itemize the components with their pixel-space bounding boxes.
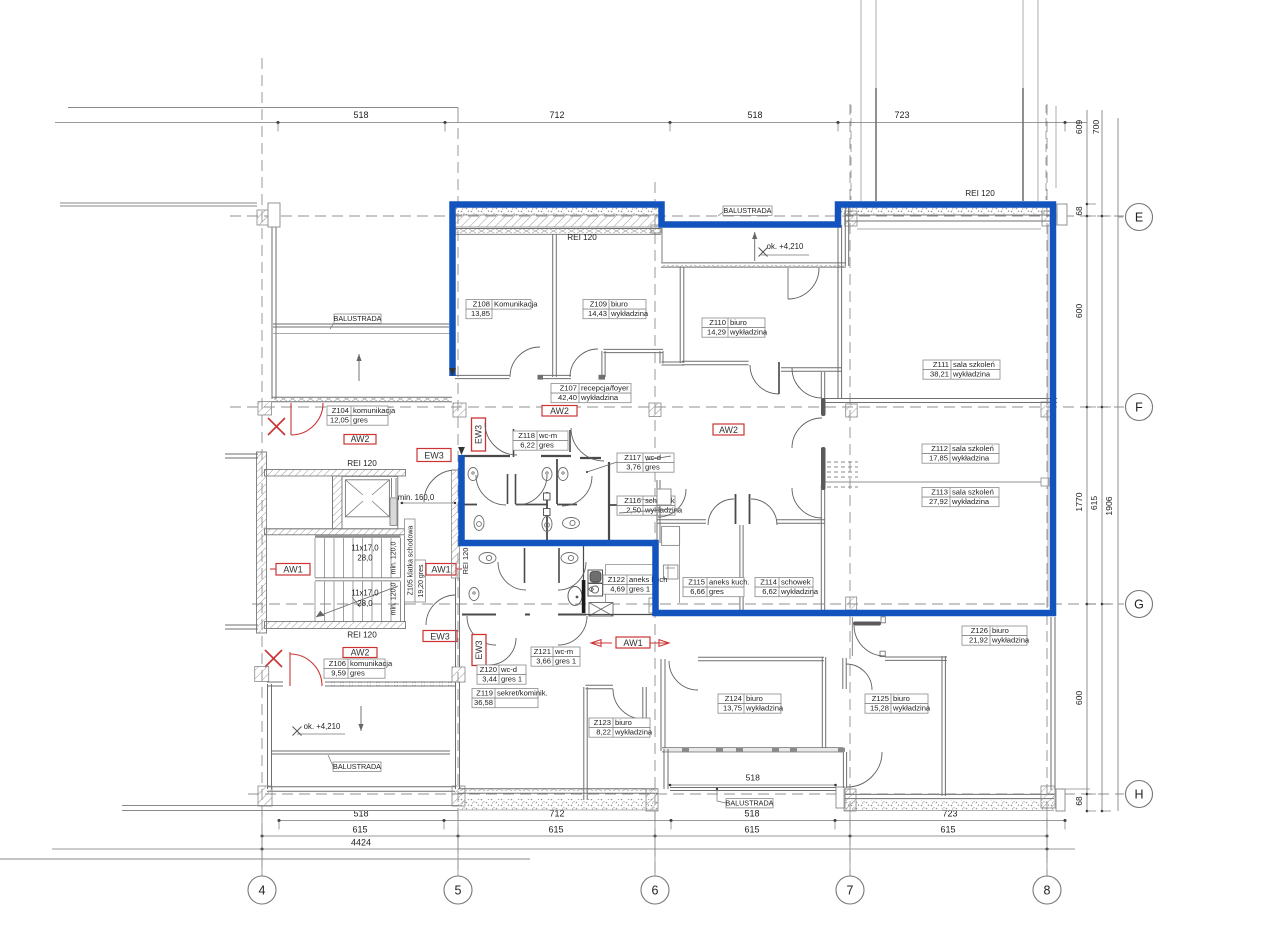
svg-text:Z116: Z116 <box>624 496 641 505</box>
svg-text:712: 712 <box>549 110 564 120</box>
svg-text:615: 615 <box>940 824 955 834</box>
svg-text:sala szkoleń: sala szkoleń <box>952 488 994 497</box>
svg-text:wc-m: wc-m <box>554 647 573 656</box>
svg-text:Z111: Z111 <box>933 360 949 369</box>
svg-text:723: 723 <box>894 110 909 120</box>
svg-text:3,76: 3,76 <box>626 463 641 472</box>
svg-text:28,0: 28,0 <box>357 554 373 563</box>
svg-text:AW2: AW2 <box>719 425 738 435</box>
svg-text:wykładzina: wykładzina <box>614 728 653 737</box>
svg-text:600: 600 <box>1074 304 1084 319</box>
svg-text:BALUSTRADA: BALUSTRADA <box>726 799 774 808</box>
svg-text:BALUSTRADA: BALUSTRADA <box>724 206 772 215</box>
svg-text:518: 518 <box>353 809 368 819</box>
svg-text:gres 1: gres 1 <box>555 657 576 666</box>
svg-text:19,20 gres: 19,20 gres <box>418 564 425 598</box>
svg-text:13,75: 13,75 <box>723 704 742 713</box>
svg-text:11x17,0: 11x17,0 <box>351 589 379 598</box>
svg-text:8,22: 8,22 <box>596 728 611 737</box>
svg-text:Z117: Z117 <box>624 453 641 462</box>
svg-text:gres: gres <box>353 416 368 425</box>
svg-text:F: F <box>1135 400 1143 414</box>
svg-text:biuro: biuro <box>746 694 763 703</box>
svg-text:21,92: 21,92 <box>969 636 988 645</box>
svg-text:wykładzina: wykładzina <box>951 497 990 506</box>
svg-text:615: 615 <box>352 824 367 834</box>
svg-text:biuro: biuro <box>893 694 910 703</box>
svg-text:13,85: 13,85 <box>471 309 490 318</box>
svg-text:6: 6 <box>652 883 659 897</box>
svg-text:wykładzina: wykładzina <box>892 704 931 713</box>
svg-text:aneks kuch: aneks kuch <box>629 575 667 584</box>
svg-text:wykładzina: wykładzina <box>745 704 784 713</box>
svg-text:aneks kuch.: aneks kuch. <box>709 578 750 587</box>
svg-text:38,21: 38,21 <box>930 370 949 379</box>
svg-text:Z112: Z112 <box>931 444 948 453</box>
svg-text:4,69: 4,69 <box>610 585 625 594</box>
svg-text:8: 8 <box>1044 883 1051 897</box>
svg-text:1906: 1906 <box>1104 496 1114 515</box>
svg-text:AW2: AW2 <box>351 434 370 444</box>
svg-text:wc-m: wc-m <box>538 431 557 440</box>
svg-text:12,05: 12,05 <box>330 416 349 425</box>
svg-text:G: G <box>1134 597 1144 611</box>
svg-text:4: 4 <box>259 883 266 897</box>
svg-text:EW3: EW3 <box>474 640 484 659</box>
svg-text:600: 600 <box>1074 691 1084 706</box>
svg-text:AW1: AW1 <box>283 565 302 575</box>
svg-text:Z125: Z125 <box>872 694 889 703</box>
svg-text:27,92: 27,92 <box>929 497 948 506</box>
svg-text:sekret/kominik.: sekret/kominik. <box>497 689 548 698</box>
svg-text:AW1: AW1 <box>623 638 642 648</box>
svg-text:min. 120,0: min. 120,0 <box>391 542 398 575</box>
svg-text:6,22: 6,22 <box>520 441 535 450</box>
svg-text:wykładzina: wykładzina <box>951 454 990 463</box>
svg-text:615: 615 <box>548 824 563 834</box>
svg-text:28,0: 28,0 <box>357 599 373 608</box>
svg-text:17,85: 17,85 <box>929 454 948 463</box>
svg-text:Z110: Z110 <box>709 318 726 327</box>
svg-text:gres 1: gres 1 <box>629 585 650 594</box>
svg-text:Z115: Z115 <box>688 578 705 587</box>
svg-text:gres: gres <box>539 441 554 450</box>
svg-text:15,28: 15,28 <box>870 704 889 713</box>
svg-text:615: 615 <box>744 824 759 834</box>
svg-text:H: H <box>1134 787 1143 801</box>
svg-text:REI 120: REI 120 <box>347 459 377 468</box>
svg-text:Z105 klatka schodowa: Z105 klatka schodowa <box>407 526 414 596</box>
svg-text:518: 518 <box>747 110 762 120</box>
svg-text:REI 120: REI 120 <box>461 548 470 575</box>
svg-text:gres 1: gres 1 <box>501 675 522 684</box>
svg-text:68: 68 <box>1075 206 1084 216</box>
svg-text:Z113: Z113 <box>931 488 948 497</box>
svg-text:Z121: Z121 <box>534 647 551 656</box>
svg-text:4424: 4424 <box>351 837 371 847</box>
svg-text:700: 700 <box>1091 120 1101 135</box>
svg-text:518: 518 <box>744 809 759 819</box>
svg-text:518: 518 <box>353 110 368 120</box>
svg-text:REI 120: REI 120 <box>567 233 597 242</box>
svg-text:wykładzina: wykładzina <box>991 636 1030 645</box>
svg-text:komunikacja: komunikacja <box>350 659 393 668</box>
svg-text:REI 120: REI 120 <box>347 631 377 640</box>
svg-text:sala szkoleń: sala szkoleń <box>952 444 994 453</box>
svg-text:615: 615 <box>1089 496 1099 511</box>
svg-text:AW2: AW2 <box>351 648 370 658</box>
svg-text:AW2: AW2 <box>550 406 569 416</box>
svg-text:ok. +4,210: ok. +4,210 <box>304 722 341 731</box>
svg-text:sala szkoleń: sala szkoleń <box>953 360 995 369</box>
svg-text:Z119: Z119 <box>476 689 493 698</box>
svg-text:EW3: EW3 <box>430 632 450 642</box>
svg-text:EW3: EW3 <box>474 425 484 444</box>
svg-text:gres: gres <box>350 669 365 678</box>
svg-text:E: E <box>1135 210 1143 224</box>
svg-text:wc-d: wc-d <box>644 453 661 462</box>
svg-text:5: 5 <box>455 883 462 897</box>
svg-text:min. 120,0: min. 120,0 <box>391 583 398 616</box>
svg-text:wc-d: wc-d <box>500 665 517 674</box>
svg-text:Z126: Z126 <box>971 626 988 635</box>
svg-text:BALUSTRADA: BALUSTRADA <box>334 314 382 323</box>
svg-text:wykładzina: wykładzina <box>580 393 619 402</box>
svg-text:wykładzina: wykładzina <box>610 309 649 318</box>
svg-text:ok. +4,210: ok. +4,210 <box>767 242 804 251</box>
svg-text:Z123: Z123 <box>594 718 611 727</box>
svg-text:gres: gres <box>645 463 660 472</box>
svg-text:Z109: Z109 <box>590 300 607 309</box>
svg-text:Z106: Z106 <box>329 659 346 668</box>
svg-text:2,50: 2,50 <box>626 506 641 515</box>
svg-text:518: 518 <box>746 773 761 783</box>
svg-text:9,59: 9,59 <box>331 669 346 678</box>
svg-text:14,43: 14,43 <box>588 309 607 318</box>
svg-text:3,44: 3,44 <box>482 675 497 684</box>
svg-text:biuro: biuro <box>615 718 632 727</box>
svg-text:schowek: schowek <box>781 578 811 587</box>
svg-text:1770: 1770 <box>1074 492 1084 511</box>
svg-text:Z118: Z118 <box>518 431 535 440</box>
svg-text:AW1: AW1 <box>431 565 450 575</box>
svg-text:609: 609 <box>1074 120 1084 135</box>
svg-text:68: 68 <box>1075 796 1084 806</box>
svg-text:42,40: 42,40 <box>558 393 577 402</box>
svg-text:14,29: 14,29 <box>707 328 726 337</box>
svg-text:Z108: Z108 <box>473 300 490 309</box>
svg-text:min. 160,0: min. 160,0 <box>398 493 435 502</box>
svg-text:biuro: biuro <box>730 318 747 327</box>
svg-text:Z107: Z107 <box>560 384 577 393</box>
svg-text:6,66: 6,66 <box>690 587 705 596</box>
svg-text:komunikacja: komunikacja <box>353 406 396 415</box>
svg-text:biuro: biuro <box>992 626 1009 635</box>
svg-text:BALUSTRADA: BALUSTRADA <box>333 762 381 771</box>
svg-text:EW3: EW3 <box>424 451 444 461</box>
svg-text:recepcja/foyer: recepcja/foyer <box>581 384 629 393</box>
svg-text:Z120: Z120 <box>480 665 497 674</box>
svg-text:36,58: 36,58 <box>474 698 493 707</box>
svg-text:Z122: Z122 <box>608 575 625 584</box>
svg-text:wykładzina: wykładzina <box>780 587 819 596</box>
svg-text:wykładzina: wykładzina <box>952 370 991 379</box>
svg-text:wykładzina: wykładzina <box>729 328 768 337</box>
svg-text:11x17,0: 11x17,0 <box>351 544 379 553</box>
svg-text:biuro: biuro <box>611 300 628 309</box>
svg-text:Komunikacja: Komunikacja <box>494 300 538 309</box>
svg-text:6,62: 6,62 <box>762 587 777 596</box>
svg-text:Z104: Z104 <box>332 406 349 415</box>
svg-text:7: 7 <box>847 883 854 897</box>
svg-text:Z114: Z114 <box>760 578 777 587</box>
svg-text:3,66: 3,66 <box>536 657 551 666</box>
svg-text:gres: gres <box>709 587 724 596</box>
svg-text:REI 120: REI 120 <box>965 189 995 198</box>
svg-text:Z124: Z124 <box>725 694 742 703</box>
